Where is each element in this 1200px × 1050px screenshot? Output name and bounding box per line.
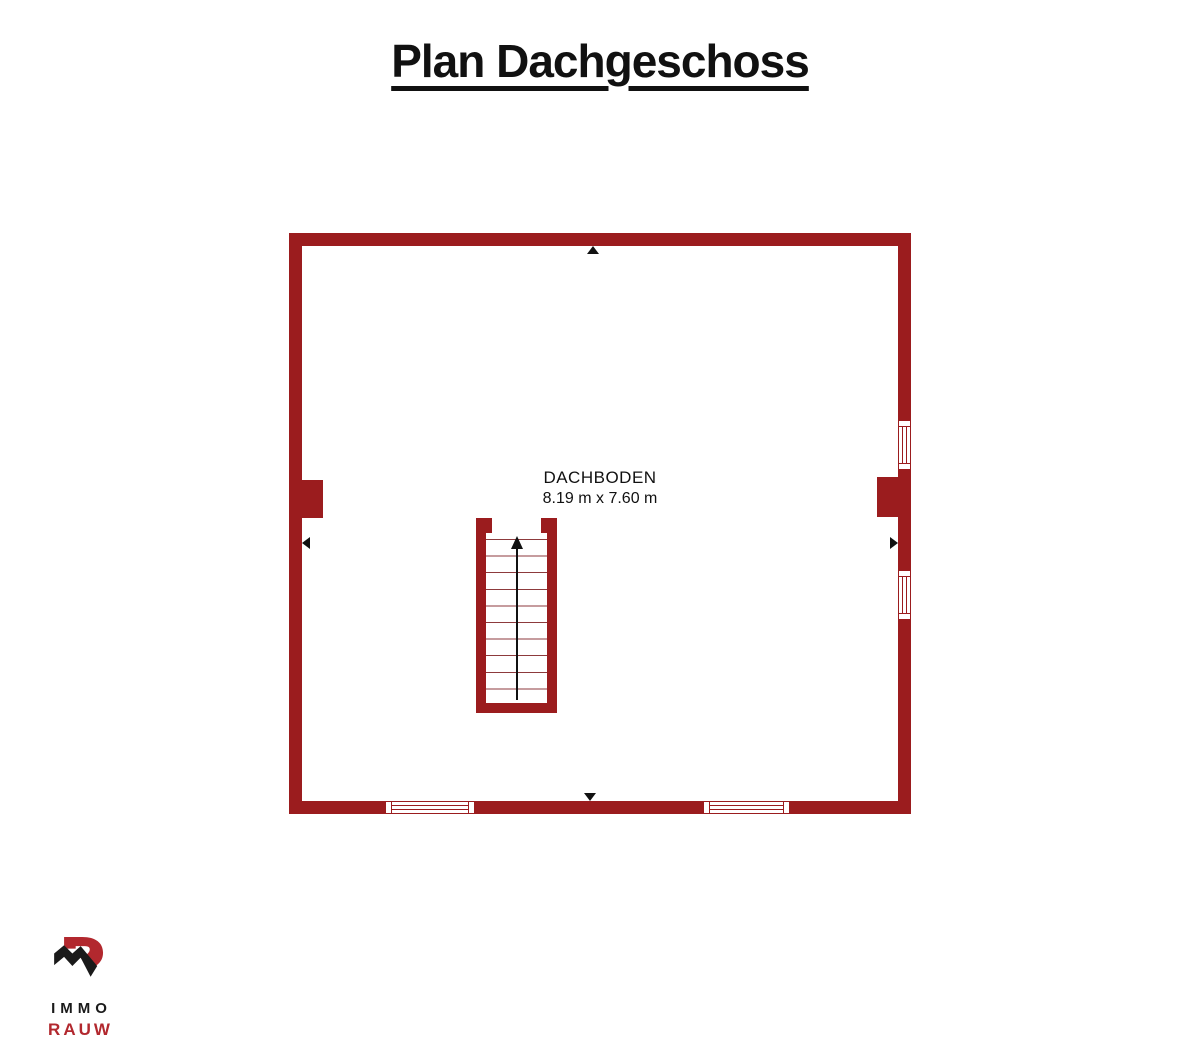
wall-top [289, 233, 911, 246]
wall-marker-left-icon [302, 537, 310, 549]
window-right-upper [898, 420, 911, 470]
logo-text-immo: IMMO [41, 1000, 122, 1017]
stair-wall-right [547, 518, 557, 713]
room-name: DACHBODEN [450, 469, 750, 488]
window-bottom-left [385, 801, 475, 814]
pilaster-left [302, 480, 323, 518]
window-pane [709, 805, 784, 810]
page: Plan Dachgeschoss [0, 0, 1200, 1050]
room-dimensions: 8.19 m x 7.60 m [450, 490, 750, 508]
wall-right [898, 233, 911, 814]
pilaster-right [877, 477, 898, 517]
window-bottom-right [703, 801, 790, 814]
room-label: DACHBODEN 8.19 m x 7.60 m [450, 469, 750, 508]
window-right-lower [898, 570, 911, 620]
logo-mark-icon [49, 932, 109, 990]
floor-plan: DACHBODEN 8.19 m x 7.60 m [289, 233, 911, 814]
stair-tab-left [476, 518, 492, 533]
window-pane [902, 426, 907, 464]
stair-direction-arrow-icon [511, 536, 523, 549]
logo-text-rauw: RAUW [39, 1020, 122, 1040]
window-pane [391, 805, 469, 810]
company-logo: IMMO RAUW [36, 932, 122, 1040]
window-pane [902, 576, 907, 614]
wall-bottom [289, 801, 911, 814]
wall-marker-top-icon [587, 246, 599, 254]
stair-direction-arrow [516, 548, 518, 700]
stair-wall-left [476, 518, 486, 713]
stair-wall-bottom [476, 703, 557, 713]
page-title: Plan Dachgeschoss [0, 36, 1200, 87]
wall-marker-right-icon [890, 537, 898, 549]
stair-tab-right [541, 518, 557, 533]
wall-left [289, 233, 302, 814]
wall-marker-bottom-icon [584, 793, 596, 801]
